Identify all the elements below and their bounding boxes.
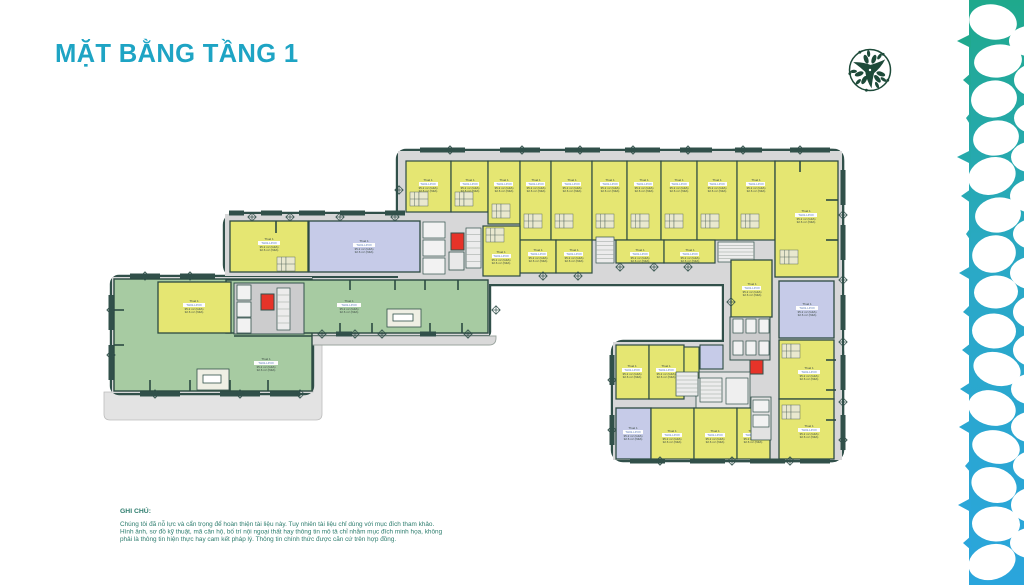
svg-text:32.6 m² (NFA): 32.6 m² (NFA) — [565, 259, 584, 263]
svg-text:32.6 m² (NFA): 32.6 m² (NFA) — [495, 189, 514, 193]
svg-text:32.6 m² (NFA): 32.6 m² (NFA) — [670, 189, 689, 193]
svg-text:32.6 m² (NFA): 32.6 m² (NFA) — [185, 310, 204, 314]
svg-text:32.6 m² (NFA): 32.6 m² (NFA) — [800, 377, 819, 381]
svg-text:32.6 m² (NFA): 32.6 m² (NFA) — [798, 313, 817, 317]
svg-text:32.6 m² (NFA): 32.6 m² (NFA) — [744, 440, 763, 444]
svg-text:32.6 m² (NFA): 32.6 m² (NFA) — [355, 250, 374, 254]
svg-text:32.6 m² (NFA): 32.6 m² (NFA) — [419, 189, 438, 193]
svg-text:32.6 m² (NFA): 32.6 m² (NFA) — [743, 293, 762, 297]
svg-text:32.6 m² (NFA): 32.6 m² (NFA) — [663, 440, 682, 444]
svg-text:32.6 m² (NFA): 32.6 m² (NFA) — [797, 220, 816, 224]
svg-text:32.6 m² (NFA): 32.6 m² (NFA) — [527, 189, 546, 193]
svg-text:32.6 m² (NFA): 32.6 m² (NFA) — [706, 440, 725, 444]
svg-text:32.6 m² (NFA): 32.6 m² (NFA) — [747, 189, 766, 193]
svg-text:phải là thông tin hiện thực ha: phải là thông tin hiện thực hay cam kết … — [120, 534, 396, 543]
svg-text:32.6 m² (NFA): 32.6 m² (NFA) — [461, 189, 480, 193]
svg-text:GHI CHÚ:: GHI CHÚ: — [120, 506, 151, 515]
svg-text:32.6 m² (NFA): 32.6 m² (NFA) — [681, 259, 700, 263]
svg-text:Hình ảnh, sơ đồ kỹ thuật, mã c: Hình ảnh, sơ đồ kỹ thuật, mã căn hộ, bố … — [120, 527, 443, 536]
svg-text:32.6 m² (NFA): 32.6 m² (NFA) — [260, 248, 279, 252]
svg-text:32.6 m² (NFA): 32.6 m² (NFA) — [601, 189, 620, 193]
svg-text:32.6 m² (NFA): 32.6 m² (NFA) — [492, 261, 511, 265]
svg-text:32.6 m² (NFA): 32.6 m² (NFA) — [635, 189, 654, 193]
svg-text:32.6 m² (NFA): 32.6 m² (NFA) — [624, 437, 643, 441]
svg-text:32.6 m² (NFA): 32.6 m² (NFA) — [708, 189, 727, 193]
svg-text:32.6 m² (NFA): 32.6 m² (NFA) — [257, 368, 276, 372]
svg-text:32.6 m² (NFA): 32.6 m² (NFA) — [563, 189, 582, 193]
svg-text:Chúng tôi đã nỗ lực và cẩn trọ: Chúng tôi đã nỗ lực và cẩn trọng để hoàn… — [120, 519, 434, 528]
svg-text:32.6 m² (NFA): 32.6 m² (NFA) — [529, 259, 548, 263]
svg-text:32.6 m² (NFA): 32.6 m² (NFA) — [340, 310, 359, 314]
svg-text:MẶT BẰNG TẦNG 1: MẶT BẰNG TẦNG 1 — [55, 38, 298, 68]
svg-text:32.6 m² (NFA): 32.6 m² (NFA) — [800, 435, 819, 439]
svg-text:32.6 m² (NFA): 32.6 m² (NFA) — [657, 375, 676, 379]
svg-text:32.6 m² (NFA): 32.6 m² (NFA) — [631, 259, 650, 263]
svg-text:32.6 m² (NFA): 32.6 m² (NFA) — [623, 375, 642, 379]
